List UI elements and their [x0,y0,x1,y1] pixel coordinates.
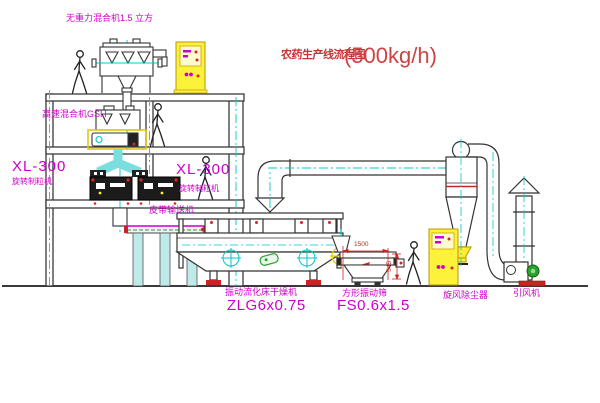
label-cyclone: 旋风除尘器 [443,291,488,300]
label-fan: 引风机 [513,289,540,298]
fluid-bed-dryer [177,213,352,285]
dimension-sieve-height: 545 [387,261,394,272]
label-xl300-mid: XL-300 [176,162,230,178]
label-gravity-mixer: 无重力混合机1.5 立方 [66,14,153,23]
label-high-speed-mixer: 高速混合机GSH [42,110,107,119]
label-sieve-model: FS0.6x1.5 [337,298,410,314]
label-granulator-left: 旋转制粒机 [12,178,52,186]
label-granulator-mid: 旋转制粒机 [179,185,219,193]
person-roof [73,51,87,93]
induced-draft-fan [504,262,545,286]
diagram-title-capacity: (500kg/h) [344,44,437,67]
exhaust-duct [256,159,447,212]
drop-chute [113,208,127,226]
flow-diagram-canvas: 无重力混合机1.5 立方 农药生产线流程图 (500kg/h) 高速混合机GSH… [0,0,600,403]
dimension-sieve-length: 1500 [354,242,368,249]
chute-flanges [90,170,148,177]
label-xl300-left: XL-300 [12,159,66,175]
label-belt-conveyor: 皮带输送机 [149,206,194,215]
control-cabinet-ground [429,229,458,285]
label-dryer-model: ZLG6x0.75 [227,298,306,314]
control-cabinet-roof [174,42,207,93]
granulator-left [90,177,132,200]
person-ground [407,242,421,284]
granulator-right [138,177,180,200]
dryer-spring-mounts [205,219,336,233]
